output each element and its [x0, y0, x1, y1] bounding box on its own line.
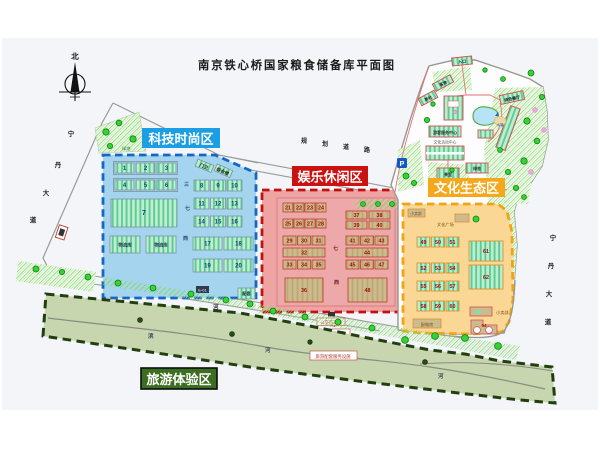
svg-text:17: 17 [204, 242, 211, 248]
svg-text:道: 道 [30, 215, 37, 224]
svg-text:23: 23 [307, 206, 313, 212]
svg-text:物流库: 物流库 [118, 242, 132, 249]
svg-text:10: 10 [231, 184, 238, 190]
svg-text:配电房: 配电房 [421, 321, 434, 328]
svg-text:三: 三 [184, 182, 189, 188]
svg-text:28: 28 [318, 222, 324, 228]
svg-text:北: 北 [71, 51, 79, 61]
svg-text:47: 47 [379, 263, 385, 269]
svg-text:19: 19 [204, 264, 211, 270]
svg-text:49: 49 [421, 240, 427, 246]
svg-text:绿地: 绿地 [122, 145, 131, 151]
svg-text:配套: 配套 [242, 290, 251, 297]
svg-text:科技时尚区: 科技时尚区 [148, 132, 213, 147]
svg-text:大: 大 [546, 289, 553, 298]
svg-text:P: P [400, 161, 405, 168]
svg-text:52: 52 [421, 266, 427, 272]
svg-text:娱乐休闲区: 娱乐休闲区 [297, 170, 362, 185]
svg-text:12: 12 [215, 202, 222, 208]
svg-text:11: 11 [198, 202, 205, 208]
svg-text:33: 33 [287, 263, 293, 269]
svg-text:37: 37 [354, 213, 360, 219]
svg-text:55: 55 [421, 284, 427, 290]
svg-text:62: 62 [483, 275, 489, 281]
svg-text:20: 20 [235, 264, 242, 270]
svg-text:宁: 宁 [550, 233, 557, 242]
svg-text:丹: 丹 [54, 161, 62, 169]
svg-text:35: 35 [316, 263, 322, 269]
svg-text:36: 36 [301, 288, 307, 294]
svg-text:50: 50 [435, 240, 441, 246]
svg-text:22: 22 [296, 206, 302, 212]
svg-text:26: 26 [296, 222, 302, 228]
svg-text:7: 7 [142, 210, 146, 217]
svg-text:40: 40 [377, 223, 383, 229]
svg-text:53: 53 [435, 266, 441, 272]
svg-text:27: 27 [307, 222, 313, 228]
svg-text:划: 划 [322, 140, 328, 148]
svg-text:E-01: E-01 [198, 288, 207, 293]
svg-text:25: 25 [285, 222, 291, 228]
svg-text:57: 57 [450, 284, 456, 290]
svg-text:西: 西 [183, 235, 188, 242]
svg-text:旅游配套服务设施: 旅游配套服务设施 [315, 353, 351, 360]
svg-text:文化广场: 文化广场 [437, 221, 454, 228]
svg-text:18: 18 [235, 242, 242, 248]
svg-text:41: 41 [350, 239, 356, 245]
svg-text:文化活动中心: 文化活动中心 [434, 140, 457, 145]
svg-text:32: 32 [301, 251, 307, 257]
svg-text:51: 51 [450, 240, 456, 246]
svg-text:16: 16 [231, 220, 238, 226]
svg-text:21: 21 [285, 206, 291, 212]
svg-text:游客服务中心: 游客服务中心 [433, 129, 457, 135]
svg-text:物流库: 物流库 [154, 242, 168, 249]
svg-text:道: 道 [343, 143, 349, 151]
svg-text:45: 45 [350, 263, 356, 269]
svg-text:滨: 滨 [148, 332, 154, 340]
svg-text:39: 39 [354, 223, 360, 229]
svg-text:河: 河 [438, 372, 444, 380]
svg-text:54: 54 [450, 266, 456, 272]
svg-text:64: 64 [481, 323, 487, 328]
svg-text:38: 38 [377, 213, 383, 219]
svg-text:南京铁心桥国家粮食储备库平面图: 南京铁心桥国家粮食储备库平面图 [198, 58, 396, 72]
svg-text:31: 31 [316, 239, 322, 245]
svg-text:七: 七 [333, 245, 338, 252]
svg-text:河: 河 [265, 346, 271, 354]
svg-text:48: 48 [365, 288, 371, 294]
svg-text:24: 24 [318, 206, 324, 212]
svg-text:入口: 入口 [458, 58, 467, 65]
svg-text:宁: 宁 [68, 129, 75, 138]
svg-text:大: 大 [43, 188, 50, 197]
svg-text:七: 七 [185, 205, 190, 212]
svg-text:58: 58 [421, 304, 427, 310]
svg-text:13: 13 [231, 202, 238, 208]
svg-text:60: 60 [450, 304, 456, 310]
svg-text:旅游体验区: 旅游体验区 [146, 372, 211, 387]
svg-text:西: 西 [334, 279, 339, 286]
svg-text:43: 43 [379, 239, 385, 245]
svg-text:文化生态区: 文化生态区 [434, 181, 499, 196]
svg-text:46: 46 [364, 263, 370, 269]
svg-text:61: 61 [483, 249, 489, 255]
svg-text:34: 34 [301, 263, 307, 269]
svg-text:小卖部: 小卖部 [410, 211, 422, 216]
svg-text:29: 29 [287, 239, 293, 245]
svg-text:丹: 丹 [547, 262, 555, 270]
svg-text:规: 规 [301, 137, 307, 145]
svg-text:水景: 水景 [496, 122, 504, 127]
svg-text:59: 59 [435, 304, 441, 310]
svg-text:14: 14 [198, 220, 205, 226]
svg-text:路: 路 [364, 146, 371, 154]
svg-text:56: 56 [435, 284, 441, 290]
svg-text:42: 42 [364, 239, 370, 245]
svg-text:道: 道 [545, 317, 552, 326]
svg-text:小卖部: 小卖部 [496, 309, 509, 316]
svg-text:44: 44 [364, 251, 370, 257]
svg-text:15: 15 [215, 220, 222, 226]
svg-text:30: 30 [301, 239, 307, 245]
svg-text:绿舍: 绿舍 [473, 165, 481, 171]
